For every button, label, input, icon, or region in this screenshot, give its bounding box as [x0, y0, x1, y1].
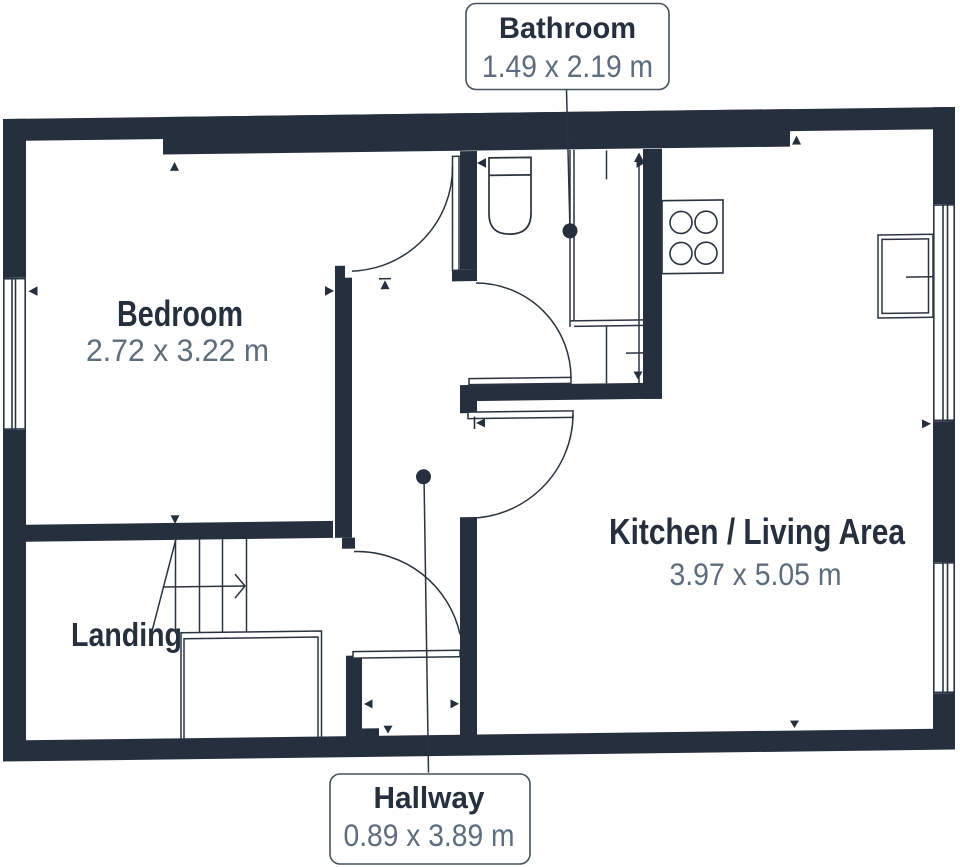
svg-text:1.49 x 2.19 m: 1.49 x 2.19 m [482, 48, 653, 84]
svg-text:3.97 x 5.05 m: 3.97 x 5.05 m [670, 556, 842, 592]
svg-text:2.72 x 3.22 m: 2.72 x 3.22 m [86, 332, 269, 368]
svg-text:Landing: Landing [71, 616, 182, 653]
svg-text:Hallway: Hallway [374, 780, 486, 815]
svg-text:0.89 x 3.89 m: 0.89 x 3.89 m [344, 817, 515, 853]
svg-text:Kitchen / Living Area: Kitchen / Living Area [609, 511, 906, 552]
svg-text:Bedroom: Bedroom [117, 293, 243, 334]
svg-text:Bathroom: Bathroom [499, 12, 636, 45]
